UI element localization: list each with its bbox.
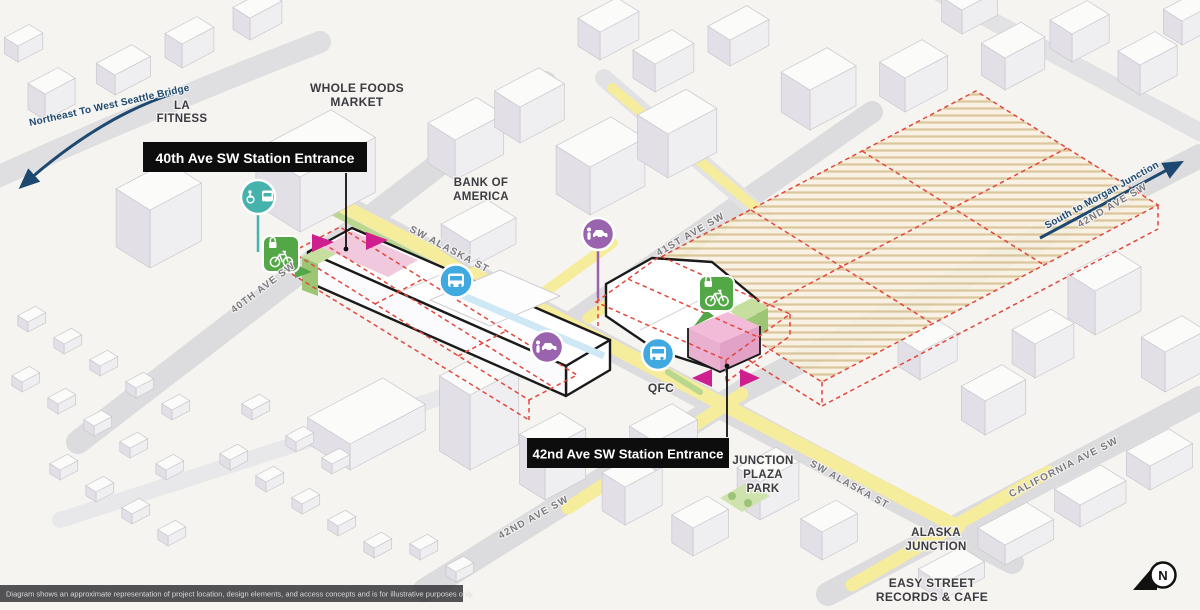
pickup-dropoff-west-icon [531, 331, 563, 363]
svg-text:AMERICA: AMERICA [453, 191, 509, 203]
entrance-40th-label: 40th Ave SW Station Entrance [156, 150, 355, 166]
footer: Diagram shows an approximate representat… [0, 585, 474, 602]
svg-text:JUNCTION: JUNCTION [905, 541, 966, 553]
station-access-diagram: Northeast To West Seattle Bridge South t… [0, 0, 1200, 610]
footer-disclaimer: Diagram shows an approximate representat… [6, 590, 474, 599]
bus-icon [448, 274, 464, 288]
svg-text:FITNESS: FITNESS [157, 113, 208, 125]
bus-stop-east-icon [642, 338, 674, 370]
bus-stop-west-icon [440, 265, 473, 298]
svg-text:PLAZA: PLAZA [743, 469, 783, 481]
label-bank-of-america: BANK OF [454, 177, 509, 189]
label-easy-street: EASY STREET [889, 576, 976, 590]
north-label: N [1158, 568, 1167, 583]
map-canvas: Northeast To West Seattle Bridge South t… [0, 0, 1200, 610]
label-la-fitness: LA [174, 100, 190, 112]
svg-text:RECORDS & CAFE: RECORDS & CAFE [876, 590, 988, 604]
svg-text:PARK: PARK [747, 483, 780, 495]
label-qfc: QFC [648, 381, 674, 395]
label-junction-plaza-park: JUNCTION [732, 455, 793, 467]
bus-icon [650, 347, 666, 361]
entrance-42nd-label: 42nd Ave SW Station Entrance [532, 447, 723, 462]
label-alaska-junction: ALASKA [911, 527, 961, 539]
svg-text:MARKET: MARKET [330, 95, 383, 109]
label-whole-foods: WHOLE FOODS [310, 81, 404, 95]
